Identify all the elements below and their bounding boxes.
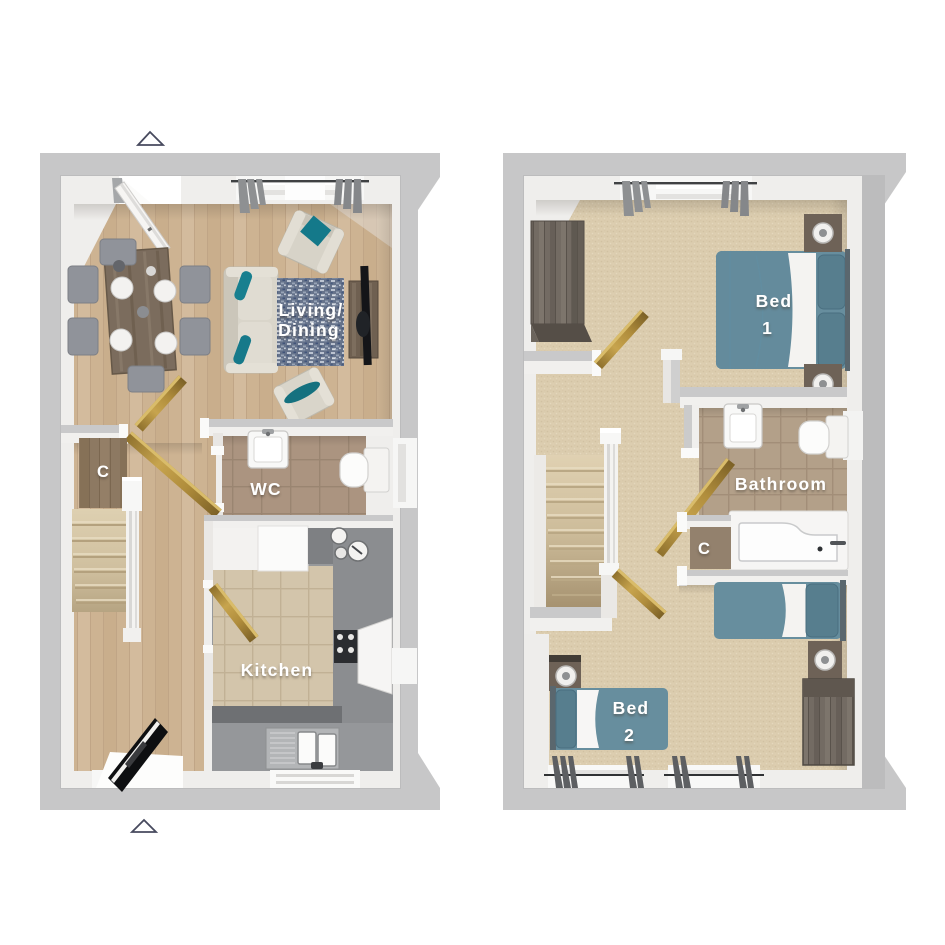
svg-text:C: C <box>698 540 710 558</box>
svg-text:Living/: Living/ <box>279 300 344 320</box>
svg-text:2: 2 <box>624 725 634 745</box>
svg-text:1: 1 <box>762 318 772 338</box>
svg-text:Bathroom: Bathroom <box>735 474 827 494</box>
svg-text:Bed: Bed <box>613 698 650 718</box>
svg-text:Bed: Bed <box>756 291 793 311</box>
svg-text:Dining: Dining <box>278 320 340 340</box>
svg-text:WC: WC <box>250 479 282 499</box>
svg-text:C: C <box>97 463 109 481</box>
svg-text:Kitchen: Kitchen <box>241 660 314 680</box>
